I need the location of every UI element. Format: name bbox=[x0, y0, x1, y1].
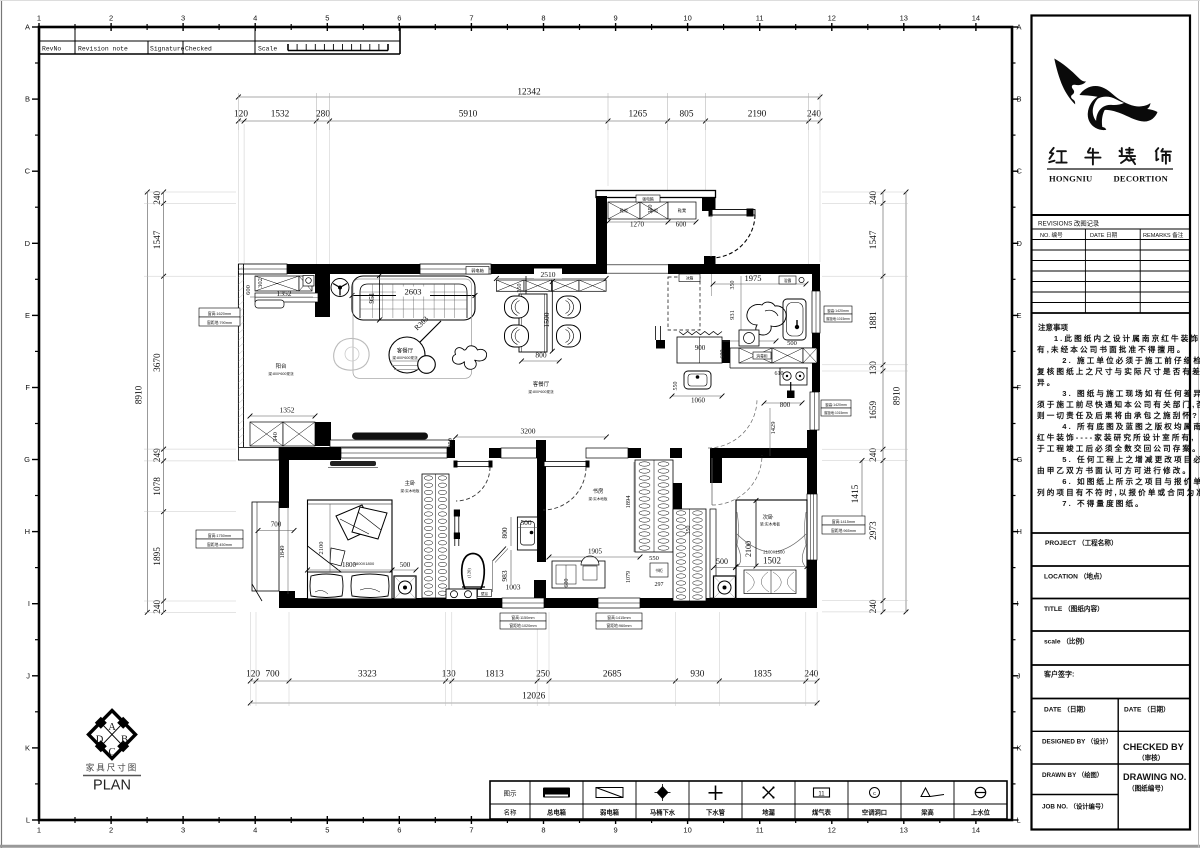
svg-text:鞋柜: 鞋柜 bbox=[620, 207, 628, 214]
svg-text:马桶下水: 马桶下水 bbox=[650, 808, 676, 817]
svg-text:120: 120 bbox=[246, 670, 260, 680]
svg-text:4: 4 bbox=[253, 14, 257, 23]
svg-text:浴霸: 浴霸 bbox=[784, 278, 792, 283]
svg-text:9: 9 bbox=[614, 826, 618, 835]
svg-text:窗高:1415mm: 窗高:1415mm bbox=[832, 519, 855, 524]
svg-text:1881: 1881 bbox=[869, 311, 879, 330]
svg-text:LOCATION （地点）: LOCATION （地点） bbox=[1044, 572, 1106, 581]
svg-text:(120): (120) bbox=[467, 568, 472, 578]
svg-text:610: 610 bbox=[775, 371, 784, 377]
svg-text:550: 550 bbox=[649, 555, 659, 562]
svg-text:14: 14 bbox=[972, 14, 980, 23]
svg-text:1: 1 bbox=[37, 826, 41, 835]
svg-text:297: 297 bbox=[655, 582, 664, 588]
svg-text:930: 930 bbox=[690, 670, 704, 680]
svg-text:240: 240 bbox=[153, 599, 163, 613]
svg-text:DESIGNED BY （设计）: DESIGNED BY （设计） bbox=[1042, 737, 1112, 746]
svg-text:240: 240 bbox=[153, 190, 163, 204]
svg-text:空调洞口: 空调洞口 bbox=[862, 808, 887, 817]
svg-text:3: 3 bbox=[181, 14, 185, 23]
svg-text:1429: 1429 bbox=[770, 422, 777, 435]
svg-text:（图纸编号）: （图纸编号） bbox=[1128, 784, 1168, 793]
svg-text:800: 800 bbox=[535, 351, 547, 360]
svg-text:500: 500 bbox=[716, 557, 728, 566]
svg-text:240: 240 bbox=[807, 110, 821, 120]
svg-text:窗距地:450mm: 窗距地:450mm bbox=[207, 542, 232, 547]
svg-text:2100: 2100 bbox=[318, 542, 325, 555]
svg-text:5910: 5910 bbox=[459, 110, 478, 120]
svg-text:则一切责任及后果将由承包之施刮怀?: 则一切责任及后果将由承包之施刮怀? bbox=[1037, 410, 1199, 420]
svg-text:家具尺寸图: 家具尺寸图 bbox=[86, 763, 139, 773]
svg-text:PLAN: PLAN bbox=[93, 778, 131, 794]
svg-text:2190: 2190 bbox=[748, 110, 767, 120]
svg-text:1975: 1975 bbox=[745, 273, 762, 283]
svg-text:JOB NO. （设计编号）: JOB NO. （设计编号） bbox=[1042, 802, 1107, 811]
svg-text:次卧: 次卧 bbox=[762, 513, 774, 521]
svg-text:302: 302 bbox=[257, 278, 264, 288]
svg-text:下水管: 下水管 bbox=[706, 808, 726, 817]
svg-text:弱电箱: 弱电箱 bbox=[471, 267, 484, 274]
svg-text:130: 130 bbox=[442, 670, 456, 680]
svg-text:煤气表: 煤气表 bbox=[812, 808, 832, 817]
svg-text:805: 805 bbox=[680, 110, 694, 120]
svg-text:1547: 1547 bbox=[153, 230, 163, 249]
svg-text:1835: 1835 bbox=[753, 670, 772, 680]
svg-text:窗距地:790mm: 窗距地:790mm bbox=[207, 320, 232, 325]
svg-text:D: D bbox=[25, 239, 31, 248]
svg-text:窗高:1620mm: 窗高:1620mm bbox=[208, 311, 231, 316]
svg-text:窗高:1150mm: 窗高:1150mm bbox=[511, 615, 534, 620]
svg-text:350: 350 bbox=[686, 526, 692, 535]
svg-text:1800: 1800 bbox=[342, 561, 357, 569]
svg-text:C: C bbox=[25, 167, 31, 176]
svg-text:2685: 2685 bbox=[603, 670, 622, 680]
svg-text:HONGNIU: HONGNIU bbox=[1049, 174, 1092, 184]
svg-text:c: c bbox=[873, 791, 876, 797]
svg-text:1270: 1270 bbox=[630, 221, 645, 229]
svg-text:鞋凳: 鞋凳 bbox=[678, 207, 687, 214]
svg-text:消毒柜: 消毒柜 bbox=[756, 354, 768, 359]
svg-text:951: 951 bbox=[367, 292, 376, 304]
svg-text:窗距地:1015mm: 窗距地:1015mm bbox=[824, 410, 848, 415]
svg-text:DATE 日期: DATE 日期 bbox=[1090, 232, 1118, 239]
svg-text:11: 11 bbox=[756, 826, 764, 835]
svg-text:350: 350 bbox=[517, 284, 523, 293]
svg-text:主卧: 主卧 bbox=[404, 479, 416, 487]
svg-text:窗高:1420mm: 窗高:1420mm bbox=[825, 402, 847, 407]
svg-text:280: 280 bbox=[316, 110, 330, 120]
svg-text:10: 10 bbox=[683, 826, 691, 835]
svg-text:4. 所有底图及蓝图之版权均属南京: 4. 所有底图及蓝图之版权均属南京 bbox=[1037, 421, 1200, 431]
svg-text:D: D bbox=[96, 735, 104, 746]
svg-text:3: 3 bbox=[181, 826, 185, 835]
svg-text:1078: 1078 bbox=[153, 477, 163, 496]
svg-text:RevNo: RevNo bbox=[42, 46, 61, 53]
svg-text:1905: 1905 bbox=[588, 548, 603, 556]
svg-text:Signature: Signature bbox=[150, 46, 185, 53]
svg-text:900: 900 bbox=[695, 344, 706, 352]
svg-text:B: B bbox=[25, 95, 30, 104]
svg-text:阳台: 阳台 bbox=[275, 362, 287, 370]
svg-text:L: L bbox=[26, 816, 30, 825]
svg-text:1547: 1547 bbox=[869, 230, 879, 249]
svg-text:11: 11 bbox=[818, 791, 825, 797]
svg-text:窗距地:1020mm: 窗距地:1020mm bbox=[509, 623, 536, 628]
svg-text:梁:实木地板: 梁:实木地板 bbox=[760, 522, 780, 527]
svg-text:2973: 2973 bbox=[869, 521, 879, 540]
svg-text:窗距地:965mm: 窗距地:965mm bbox=[831, 528, 856, 533]
svg-text:TITLE （图纸内容）: TITLE （图纸内容） bbox=[1044, 604, 1104, 613]
svg-text:1813: 1813 bbox=[485, 670, 504, 680]
svg-text:2100X1500: 2100X1500 bbox=[763, 550, 785, 555]
svg-text:上水位: 上水位 bbox=[971, 808, 991, 817]
svg-text:2603: 2603 bbox=[405, 287, 422, 297]
svg-text:Revision note: Revision note bbox=[78, 46, 128, 53]
svg-text:窗高:1415mm: 窗高:1415mm bbox=[607, 615, 630, 620]
svg-text:客餐厅: 客餐厅 bbox=[397, 347, 414, 355]
svg-text:有,未经本公司书面批准不得擅用。: 有,未经本公司书面批准不得擅用。 bbox=[1037, 344, 1187, 354]
svg-text:由甲乙双方书面认可方可进行修改。: 由甲乙双方书面认可方可进行修改。 bbox=[1037, 465, 1192, 475]
svg-text:500: 500 bbox=[520, 518, 532, 527]
svg-text:1.此图纸内之设计属南京红牛装饰拥: 1.此图纸内之设计属南京红牛装饰拥 bbox=[1037, 333, 1200, 343]
svg-text:红牛装饰----家装研究所设计室所有,: 红牛装饰----家装研究所设计室所有, bbox=[1037, 432, 1195, 442]
svg-text:冰箱: 冰箱 bbox=[686, 276, 694, 281]
svg-text:强电箱: 强电箱 bbox=[642, 197, 654, 202]
svg-text:DATE （日期）: DATE （日期） bbox=[1044, 705, 1090, 714]
svg-text:5: 5 bbox=[325, 14, 329, 23]
svg-text:12: 12 bbox=[828, 14, 836, 23]
svg-text:350: 350 bbox=[447, 438, 454, 448]
svg-text:700: 700 bbox=[271, 521, 282, 529]
svg-text:14: 14 bbox=[972, 826, 980, 835]
svg-text:DRAWING NO.: DRAWING NO. bbox=[1123, 772, 1186, 782]
svg-text:1894: 1894 bbox=[625, 495, 632, 509]
svg-text:梁:800*600现浇: 梁:800*600现浇 bbox=[528, 389, 554, 394]
svg-text:B: B bbox=[121, 735, 128, 746]
svg-text:A: A bbox=[108, 722, 116, 733]
svg-text:F: F bbox=[25, 383, 30, 392]
svg-text:500: 500 bbox=[400, 561, 411, 569]
svg-text:12342: 12342 bbox=[517, 88, 541, 98]
svg-text:书房: 书房 bbox=[592, 487, 604, 495]
svg-text:梁:实木地板: 梁:实木地板 bbox=[589, 496, 608, 501]
svg-text:240: 240 bbox=[869, 599, 879, 613]
svg-text:于工程竣工后必须全数交回公司存案。: 于工程竣工后必须全数交回公司存案。 bbox=[1037, 443, 1200, 453]
svg-text:DRAWN BY （绘图）: DRAWN BY （绘图） bbox=[1042, 770, 1103, 779]
svg-text:5. 任何工程上之增减更改项目必须: 5. 任何工程上之增减更改项目必须 bbox=[1037, 454, 1200, 464]
svg-text:REVISIONS 改图记录: REVISIONS 改图记录 bbox=[1038, 219, 1099, 228]
svg-text:DATE （日期）: DATE （日期） bbox=[1124, 705, 1170, 714]
svg-text:名称: 名称 bbox=[504, 808, 518, 817]
svg-text:500: 500 bbox=[787, 340, 797, 347]
svg-text:8: 8 bbox=[541, 826, 545, 835]
svg-text:窗高:1420mm: 窗高:1420mm bbox=[827, 308, 849, 313]
svg-text:7: 7 bbox=[469, 14, 473, 23]
svg-text:窗距地:960mm: 窗距地:960mm bbox=[606, 623, 631, 628]
svg-text:931: 931 bbox=[729, 310, 736, 320]
svg-text:10: 10 bbox=[683, 14, 691, 23]
svg-text:J: J bbox=[26, 671, 30, 680]
svg-text:4: 4 bbox=[253, 826, 257, 835]
svg-text:书柜: 书柜 bbox=[655, 568, 663, 573]
svg-text:DECORTION: DECORTION bbox=[1114, 174, 1169, 184]
svg-text:1849: 1849 bbox=[279, 546, 286, 559]
svg-text:REMARKS 备注: REMARKS 备注 bbox=[1143, 231, 1184, 239]
svg-text:600: 600 bbox=[564, 579, 570, 588]
svg-text:3. 图纸与施工现场如有任何差异,必: 3. 图纸与施工现场如有任何差异,必 bbox=[1037, 388, 1200, 398]
svg-text:3200: 3200 bbox=[521, 427, 536, 436]
svg-text:窗距地:1015mm: 窗距地:1015mm bbox=[826, 316, 850, 321]
svg-text:2. 施工单位必须于施工前仔细检查: 2. 施工单位必须于施工前仔细检查 bbox=[1037, 355, 1200, 365]
svg-text:12: 12 bbox=[828, 826, 836, 835]
svg-text:6: 6 bbox=[397, 14, 401, 23]
svg-text:1502: 1502 bbox=[763, 556, 781, 566]
svg-text:800: 800 bbox=[500, 527, 509, 539]
svg-text:2510: 2510 bbox=[541, 270, 556, 279]
svg-text:1: 1 bbox=[37, 14, 41, 23]
svg-text:600: 600 bbox=[676, 221, 687, 229]
svg-text:1415: 1415 bbox=[851, 484, 861, 503]
svg-text:350: 350 bbox=[648, 205, 654, 214]
svg-text:250: 250 bbox=[536, 670, 550, 680]
svg-text:1079: 1079 bbox=[626, 571, 632, 583]
svg-text:13: 13 bbox=[900, 14, 908, 23]
svg-text:图示: 图示 bbox=[504, 790, 518, 798]
svg-text:1895: 1895 bbox=[153, 547, 163, 566]
svg-text:C: C bbox=[108, 747, 115, 758]
svg-text:350: 350 bbox=[730, 281, 736, 290]
svg-text:复核图纸上之尺寸与实际尺寸是否有差: 复核图纸上之尺寸与实际尺寸是否有差 bbox=[1036, 366, 1200, 376]
svg-text:G: G bbox=[24, 455, 30, 464]
svg-text:1659: 1659 bbox=[869, 401, 879, 420]
svg-text:1352: 1352 bbox=[277, 289, 292, 298]
svg-text:8910: 8910 bbox=[893, 386, 903, 405]
svg-text:A: A bbox=[25, 23, 30, 32]
svg-text:1352: 1352 bbox=[280, 406, 295, 415]
svg-text:梁:实木地板: 梁:实木地板 bbox=[401, 488, 420, 493]
svg-text:983: 983 bbox=[500, 570, 509, 582]
svg-text:1060: 1060 bbox=[691, 397, 706, 405]
svg-text:2100: 2100 bbox=[744, 541, 753, 557]
svg-text:3323: 3323 bbox=[358, 670, 377, 680]
svg-text:540: 540 bbox=[272, 432, 279, 442]
svg-text:scale （比例）: scale （比例） bbox=[1044, 637, 1089, 646]
svg-text:700: 700 bbox=[266, 670, 280, 680]
svg-text:K: K bbox=[25, 743, 30, 752]
svg-text:5: 5 bbox=[325, 826, 329, 835]
svg-text:7. 不得量度图纸。: 7. 不得量度图纸。 bbox=[1037, 498, 1145, 508]
svg-text:130: 130 bbox=[869, 361, 879, 375]
svg-text:梁高: 梁高 bbox=[920, 808, 934, 817]
svg-text:7: 7 bbox=[469, 826, 473, 835]
svg-text:249: 249 bbox=[153, 448, 163, 462]
svg-text:3670: 3670 bbox=[153, 353, 163, 372]
svg-text:240: 240 bbox=[869, 448, 879, 462]
svg-text:Checked: Checked bbox=[185, 46, 212, 53]
svg-text:6. 如图纸上所示之项目与报价单所: 6. 如图纸上所示之项目与报价单所 bbox=[1037, 476, 1200, 486]
svg-text:8: 8 bbox=[541, 14, 545, 23]
svg-text:1003: 1003 bbox=[506, 583, 521, 592]
svg-text:600: 600 bbox=[245, 285, 252, 295]
svg-text:11: 11 bbox=[756, 14, 764, 23]
svg-text:注意事项: 注意事项 bbox=[1038, 322, 1068, 332]
svg-text:NO. 编号: NO. 编号 bbox=[1040, 231, 1063, 239]
svg-text:弱电箱: 弱电箱 bbox=[600, 808, 620, 817]
svg-text:列的项目有不符时,以报价单或合同为准。: 列的项目有不符时,以报价单或合同为准。 bbox=[1037, 487, 1200, 497]
svg-text:1500: 1500 bbox=[542, 312, 551, 327]
svg-text:客餐厅: 客餐厅 bbox=[533, 380, 550, 388]
svg-text:客户签字:: 客户签字: bbox=[1043, 670, 1074, 679]
svg-text:总电箱: 总电箱 bbox=[547, 808, 567, 817]
svg-text:须于施工前尽快通知本公司有关部门,否: 须于施工前尽快通知本公司有关部门,否 bbox=[1037, 399, 1200, 409]
svg-text:异。: 异。 bbox=[1037, 378, 1056, 387]
svg-text:2: 2 bbox=[109, 826, 113, 835]
svg-text:600: 600 bbox=[720, 350, 726, 359]
svg-text:1800X1800: 1800X1800 bbox=[354, 561, 375, 566]
svg-text:CHECKED BY: CHECKED BY bbox=[1123, 742, 1184, 752]
svg-text:Scale: Scale bbox=[258, 46, 277, 53]
svg-text:PROJECT （工程名称）: PROJECT （工程名称） bbox=[1045, 538, 1118, 547]
svg-text:壁龛: 壁龛 bbox=[481, 591, 489, 596]
svg-text:1532: 1532 bbox=[271, 110, 290, 120]
svg-text:1265: 1265 bbox=[629, 110, 648, 120]
svg-text:窗高:1750mm: 窗高:1750mm bbox=[208, 533, 231, 538]
svg-text:240: 240 bbox=[804, 670, 818, 680]
svg-text:2: 2 bbox=[109, 14, 113, 23]
svg-text:H: H bbox=[25, 527, 30, 536]
svg-text:梁:800*600现浇: 梁:800*600现浇 bbox=[268, 371, 294, 376]
svg-text:地漏: 地漏 bbox=[762, 808, 775, 817]
svg-text:6: 6 bbox=[397, 826, 401, 835]
svg-text:梁:800*600现浇: 梁:800*600现浇 bbox=[392, 355, 418, 360]
svg-text:9: 9 bbox=[614, 14, 618, 23]
svg-text:240: 240 bbox=[869, 190, 879, 204]
svg-text:（审核）: （审核） bbox=[1138, 753, 1164, 762]
svg-text:120: 120 bbox=[234, 110, 248, 120]
svg-text:550: 550 bbox=[673, 382, 679, 391]
svg-text:13: 13 bbox=[900, 826, 908, 835]
svg-text:E: E bbox=[25, 311, 30, 320]
svg-text:8910: 8910 bbox=[135, 385, 145, 404]
svg-text:12026: 12026 bbox=[522, 692, 546, 702]
svg-text:I: I bbox=[28, 599, 30, 608]
svg-text:800: 800 bbox=[780, 401, 791, 409]
